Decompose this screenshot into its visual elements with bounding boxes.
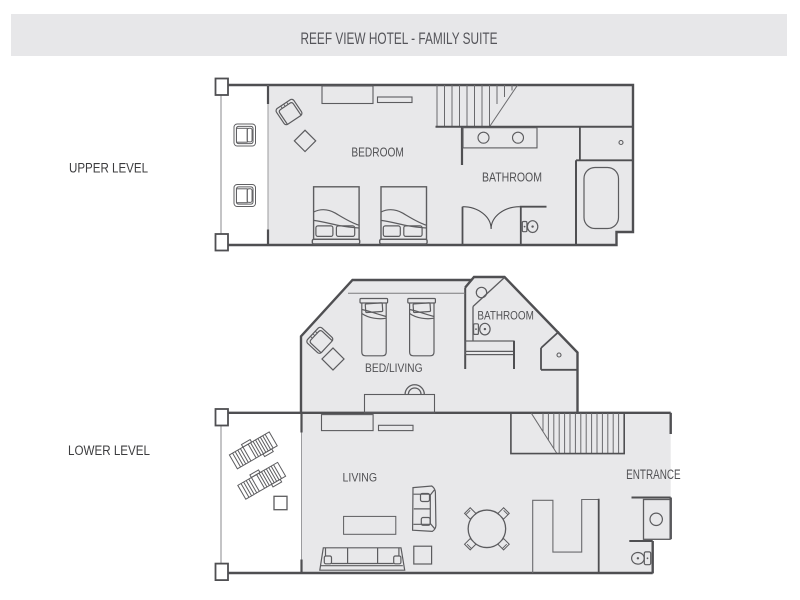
svg-text:UPPER LEVEL: UPPER LEVEL (69, 161, 148, 177)
svg-text:BATHROOM: BATHROOM (482, 170, 542, 185)
svg-text:BED/LIVING: BED/LIVING (365, 361, 423, 375)
svg-text:LOWER LEVEL: LOWER LEVEL (68, 443, 150, 459)
svg-text:BEDROOM: BEDROOM (351, 144, 404, 159)
svg-text:ENTRANCE: ENTRANCE (626, 467, 681, 482)
svg-text:BATHROOM: BATHROOM (477, 309, 534, 323)
svg-text:REEF VIEW HOTEL - FAMILY SUITE: REEF VIEW HOTEL - FAMILY SUITE (301, 30, 498, 48)
svg-text:LIVING: LIVING (343, 471, 378, 485)
